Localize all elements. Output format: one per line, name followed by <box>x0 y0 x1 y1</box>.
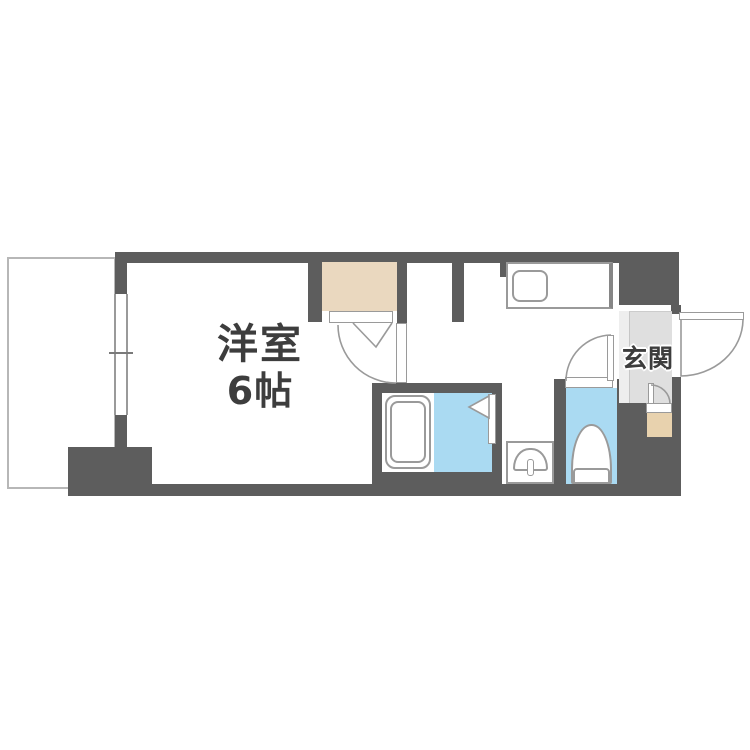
wall-toilet-west <box>554 379 566 485</box>
main-room-name: 洋室 <box>160 321 360 369</box>
window-center-tick <box>109 352 133 354</box>
wall-left-lower <box>115 414 127 448</box>
wall-stub-hall <box>452 263 464 322</box>
washbasin-faucet-icon <box>527 459 534 476</box>
bathtub-inner-rim <box>390 401 426 463</box>
storage-door-leaf <box>648 383 654 404</box>
toilet-door-threshold <box>565 377 613 388</box>
floor-plan: 洋室 6帖 玄関 <box>0 0 750 750</box>
entrance-label: 玄関 <box>616 339 680 375</box>
wall-stub-closet-left <box>308 263 322 322</box>
wall-left-upper <box>115 252 127 295</box>
shoe-cabinet <box>647 413 672 437</box>
wall-block-top-right <box>619 263 679 305</box>
main-room-label: 洋室 6帖 <box>160 321 360 413</box>
wall-block-bottom-left <box>68 447 152 496</box>
storage-door-threshold <box>646 403 672 413</box>
kitchen-sink-icon <box>512 270 548 302</box>
entrance-door-arc <box>681 320 743 376</box>
closet <box>322 262 397 311</box>
toilet-door-leaf <box>607 335 614 381</box>
window <box>114 294 128 415</box>
wall-stub-closet-right <box>397 263 407 324</box>
entrance-door-leaf <box>679 312 744 320</box>
main-room-size: 6帖 <box>160 369 360 413</box>
bath-folding-door-panel <box>488 394 496 444</box>
toilet-tank-icon <box>573 468 610 484</box>
room-door-leaf <box>396 323 407 383</box>
